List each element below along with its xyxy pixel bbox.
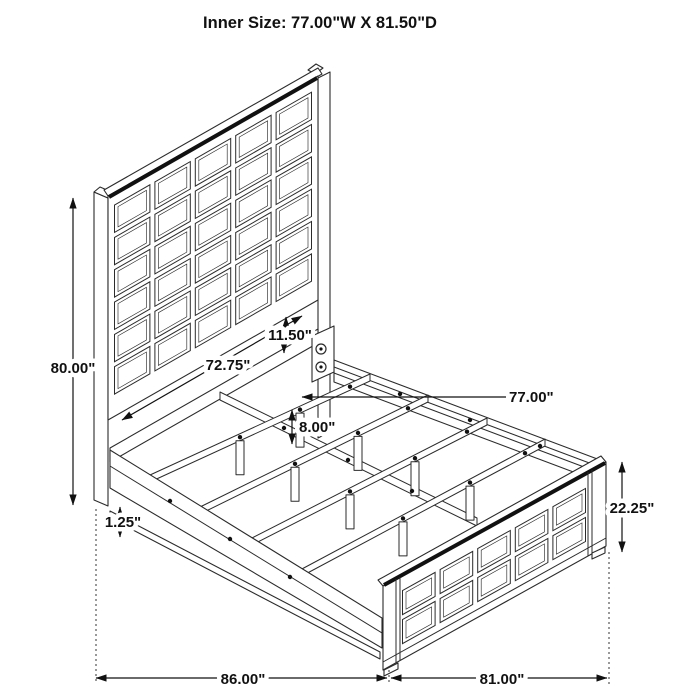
dim-overall-width: 81.00" bbox=[391, 671, 607, 688]
dim-headboard-height-label: 80.00" bbox=[51, 360, 96, 377]
dim-overall-depth: 86.00" bbox=[96, 671, 387, 688]
diagram-title: Inner Size: 77.00"W X 81.50"D bbox=[203, 14, 437, 32]
headboard-left-post bbox=[94, 192, 108, 506]
dim-footboard-height: 22.25" bbox=[610, 462, 655, 552]
dim-headboard-height: 80.00" bbox=[51, 198, 96, 505]
headboard-right-post bbox=[318, 72, 330, 438]
dim-footboard-height-label: 22.25" bbox=[610, 500, 655, 517]
bed-dimension-diagram: Inner Size: 77.00"W X 81.50"D bbox=[0, 0, 700, 700]
right-side-rail bbox=[334, 360, 600, 482]
dim-slat-leg-height-label: 8.00" bbox=[299, 419, 335, 436]
dim-panel-to-rail-label: 11.50" bbox=[268, 327, 312, 344]
dim-overall-depth-label: 86.00" bbox=[221, 671, 266, 688]
diagram-canvas: Inner Size: 77.00"W X 81.50"D bbox=[0, 0, 700, 700]
dim-rail-lip-label: 1.25" bbox=[105, 514, 141, 531]
dim-headboard-width-label: 72.75" bbox=[206, 357, 251, 374]
dim-inner-width-label: 77.00" bbox=[509, 389, 554, 406]
rail-bracket bbox=[312, 326, 334, 382]
dim-overall-width-label: 81.00" bbox=[480, 671, 525, 688]
